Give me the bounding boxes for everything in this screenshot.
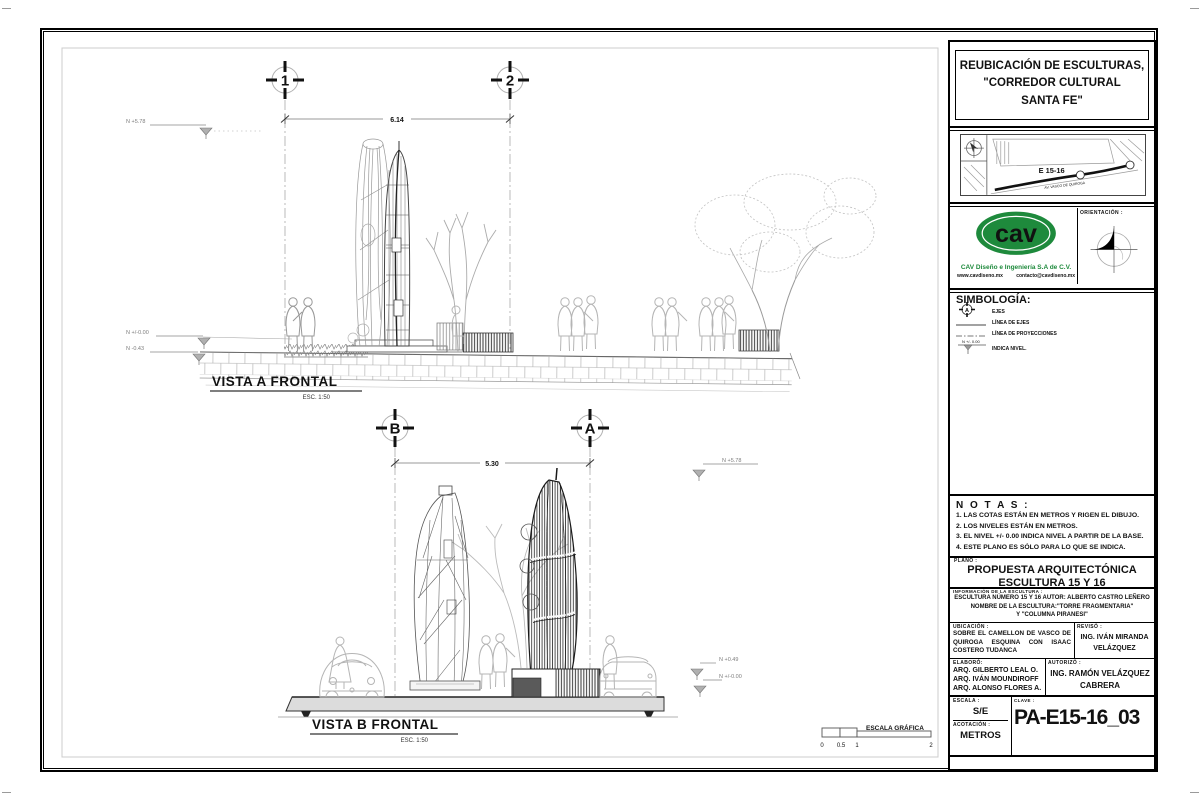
scale-tick: 0: [820, 743, 824, 749]
drawing-area: 1 2 6.14 N +5.78 N +/-0.00: [0, 0, 945, 800]
cav-logo-text: cav: [995, 220, 1037, 248]
company-website: www.cavdiseno.mx: [957, 273, 1003, 279]
info-line: NOMBRE DE LA ESCULTURA:"TORRE FRAGMENTAR…: [953, 603, 1151, 612]
nota-item: 1. LAS COTAS ESTÁN EN METROS Y RIGEN EL …: [956, 511, 1149, 522]
escala-label: ESCALA :: [953, 698, 1008, 704]
level-symbol-text: N +/- 0.00: [962, 339, 980, 344]
reviso-name-line: ING. IVÁN MIRANDA: [1077, 632, 1152, 643]
elaboro-name-line: ARQ. GILBERTO LEAL O.: [953, 666, 1042, 675]
view-a-scale: ESC. 1:50: [303, 395, 331, 401]
escala-clave-row: ESCALA : S/E ACOTACIÓN : METROS CLAVE : …: [950, 695, 1154, 755]
divider: [950, 288, 1154, 293]
people-group-right-2: [699, 296, 736, 351]
acotacion-label: ACOTACIÓN :: [953, 722, 1008, 728]
elaboro-name-line: ARQ. IVÁN MOUNDIROFF: [953, 675, 1042, 684]
info-escultura-section: INFORMACIÓN DE LA ESCULTURA : ESCULTURA …: [953, 589, 1151, 620]
map-node: [1126, 161, 1134, 169]
sculpture-torre-fragmentaria-a: [348, 139, 390, 346]
graphic-scale-bar: ESCALA GRÁFICA 0 0.5 1 2: [820, 723, 933, 749]
orientation-label: ORIENTACIÓN :: [1078, 208, 1149, 216]
location-map-drawing: E 15-16 AV. VASCO DE QUIROGA: [961, 135, 1145, 195]
scale-tick: 1: [855, 743, 859, 749]
people-group-mid: [558, 296, 598, 351]
clave-value: PA-E15-16_03: [1014, 706, 1152, 730]
map-node: [1076, 171, 1084, 179]
view-b-title: VISTA B FRONTAL: [312, 717, 439, 732]
ubicacion-cell: UBICACIÓN : SOBRE EL CAMELLON DE VASCO D…: [950, 623, 1074, 658]
planter-dark: [463, 333, 513, 352]
notas-section: N O T A S : 1. LAS COTAS ESTÁN EN METROS…: [956, 500, 1149, 553]
level-text: N +/-0.00: [719, 674, 742, 680]
view-b: B A 5.30 N +5.78 N +0.49: [278, 409, 758, 744]
level-marker-symbol: N +/- 0.00: [956, 337, 992, 362]
autorizo-name-line: CABRERA: [1048, 680, 1152, 692]
project-title: REUBICACIÓN DE ESCULTURAS, "CORREDOR CUL…: [955, 50, 1149, 120]
map-site-label: E 15-16: [1039, 166, 1065, 175]
level-marker-low: N +/-0.00: [694, 674, 742, 697]
autorizo-cell: AUTORIZÓ : ING. RAMÓN VELÁZQUEZ CABRERA: [1045, 659, 1154, 695]
ubicacion-text: SOBRE EL CAMELLON DE VASCO DE QUIROGA ES…: [953, 630, 1071, 656]
axis-bubble-2: 2: [491, 61, 529, 99]
scale-tick: 2: [929, 743, 933, 749]
orientation-compass-icon: [1080, 216, 1148, 278]
drawing-field-frame: [62, 48, 938, 757]
ubicacion-reviso-row: UBICACIÓN : SOBRE EL CAMELLON DE VASCO D…: [950, 622, 1154, 658]
people-couple: [479, 634, 515, 689]
view-a-title: VISTA A FRONTAL: [212, 374, 338, 389]
level-text: N +/-0.00: [126, 330, 149, 336]
escala-cell: ESCALA : S/E ACOTACIÓN : METROS: [950, 697, 1012, 755]
escala-value: S/E: [953, 706, 1008, 717]
platform: [278, 697, 678, 717]
scale-tick: 0.5: [837, 743, 846, 749]
simbologia-item-label: INDICA NIVEL.: [992, 346, 1027, 352]
project-title-line: REUBICACIÓN DE ESCULTURAS,: [956, 58, 1148, 75]
plano-title-line: PROPUESTA ARQUITECTÓNICA: [954, 564, 1150, 577]
level-marker-top: N +5.78: [126, 119, 262, 139]
axis-bubble-A: A: [571, 409, 609, 447]
orientation-cell: ORIENTACIÓN :: [1077, 208, 1149, 284]
simbologia-item-label: EJES: [992, 309, 1005, 315]
company-row: cav CAV Diseño e Ingeniería S.A de C.V. …: [955, 208, 1149, 284]
info-line: Y "COLUMNA PIRANESI": [953, 611, 1151, 620]
people-group-right-1: [652, 298, 687, 351]
level-text: N +5.78: [126, 119, 145, 125]
reviso-cell: REVISÓ : ING. IVÁN MIRANDA VELÁZQUEZ: [1074, 623, 1154, 658]
level-text: N +0.49: [719, 657, 738, 663]
nota-item: 2. LOS NIVELES ESTÁN EN METROS.: [956, 522, 1149, 533]
planter-right: [739, 330, 779, 351]
clave-cell: CLAVE : PA-E15-16_03: [1012, 697, 1154, 755]
project-title-line: "CORREDOR CULTURAL: [956, 75, 1148, 92]
drawing-sheet: 1 2 6.14 N +5.78 N +/-0.00: [0, 0, 1200, 800]
view-b-scale: ESC. 1:50: [401, 738, 429, 744]
axis-label: 1: [281, 73, 289, 90]
divider: [950, 202, 1154, 207]
acotacion-value: METROS: [953, 730, 1008, 741]
people-group-left: [286, 298, 315, 351]
axis-bubble-1: 1: [266, 61, 304, 99]
notas-title: N O T A S :: [956, 500, 1149, 511]
clave-label: CLAVE :: [1014, 698, 1152, 703]
divider: [950, 494, 1154, 496]
company-cell: cav CAV Diseño e Ingeniería S.A de C.V. …: [955, 208, 1077, 284]
level-marker-low: N -0.43: [126, 346, 205, 365]
sculpture-plinth-b-left: [410, 681, 480, 690]
autorizo-name-line: ING. RAMÓN VELÁZQUEZ: [1048, 668, 1152, 680]
plaza-edge-line: [203, 337, 292, 339]
simbologia-item-label: LÍNEA DE EJES: [992, 320, 1029, 326]
sculpture-base-b-right: [512, 669, 600, 697]
level-text: N +5.78: [722, 458, 741, 464]
car-left: [320, 654, 385, 698]
info-line: ESCULTURA NÚMERO 15 Y 16 AUTOR: ALBERTO …: [953, 594, 1151, 603]
elaboro-name-line: ARQ. ALONSO FLORES A.: [953, 684, 1042, 693]
divider: [950, 755, 1154, 757]
map-compass-icon: [964, 138, 984, 158]
cav-logo: cav: [964, 209, 1068, 261]
nota-item: 4. ESTE PLANO ES SÓLO PARA LO QUE SE IND…: [956, 543, 1149, 554]
level-marker-top: N +5.78: [693, 458, 758, 481]
simbologia-item-label: LÍNEA DE PROYECCIONES: [992, 331, 1057, 337]
crop-mark: [1190, 792, 1199, 793]
dimension-value: 5.30: [485, 461, 499, 468]
simbologia-section: SIMBOLOGÍA: A EJES LÍNEA DE EJES: [956, 294, 1149, 380]
location-map: E 15-16 AV. VASCO DE QUIROGA: [960, 134, 1146, 196]
company-email: contacto@cavdiseno.mx: [1016, 273, 1075, 279]
elaboro-autorizo-row: ELABORÓ: ARQ. GILBERTO LEAL O. ARQ. IVÁN…: [950, 658, 1154, 695]
divider: [953, 720, 1008, 721]
sculpture-torre-fragmentaria-b: [414, 486, 469, 688]
sculpture-columna-piranesi-b: [520, 468, 577, 690]
car-right: [600, 657, 656, 697]
reviso-name-line: VELÁZQUEZ: [1077, 643, 1152, 654]
company-name: CAV Diseño e Ingeniería S.A de C.V.: [955, 264, 1077, 271]
level-text: N -0.43: [126, 346, 144, 352]
axis-bubble-B: B: [376, 409, 414, 447]
axis-label: B: [390, 421, 401, 438]
divider: [950, 126, 1154, 131]
plano-section: PLANO : PROPUESTA ARQUITECTÓNICA ESCULTU…: [954, 558, 1150, 590]
view-a: 1 2 6.14 N +5.78 N +/-0.00: [126, 61, 876, 401]
elaboro-cell: ELABORÓ: ARQ. GILBERTO LEAL O. ARQ. IVÁN…: [950, 659, 1045, 695]
axis-label: 2: [506, 73, 514, 90]
dimension-value: 6.14: [390, 117, 404, 124]
axis-label: A: [585, 421, 596, 438]
title-block: REUBICACIÓN DE ESCULTURAS, "CORREDOR CUL…: [948, 40, 1156, 771]
nota-item: 3. EL NIVEL +/- 0.00 INDICA NIVEL A PART…: [956, 532, 1149, 543]
crop-mark: [1190, 8, 1199, 9]
project-title-line: SANTA FE": [956, 93, 1148, 110]
